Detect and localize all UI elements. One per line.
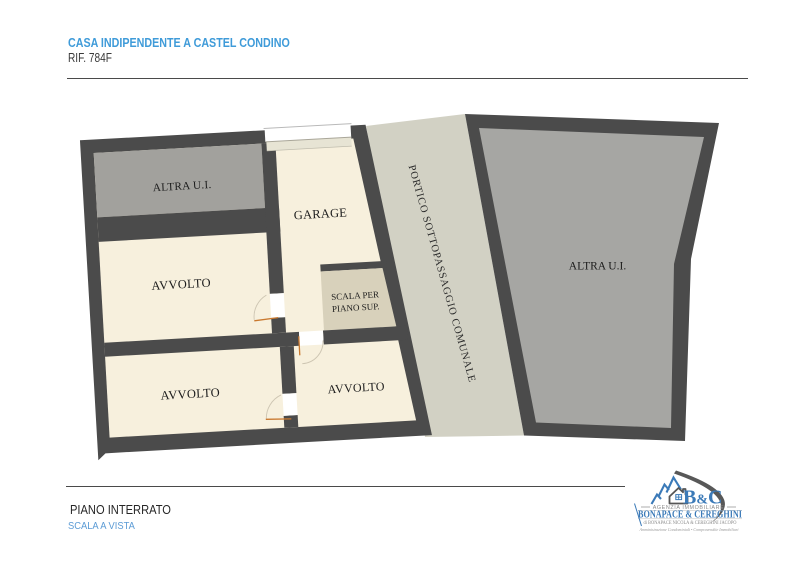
svg-text:di BONAPACE NICOLA & CEREGHINI: di BONAPACE NICOLA & CEREGHINI JACOPO <box>644 520 737 526</box>
svg-text:ALTRA U.I.: ALTRA U.I. <box>569 261 627 273</box>
svg-text:GARAGE: GARAGE <box>293 205 347 222</box>
svg-text:BONAPACE & CEREGHINI: BONAPACE & CEREGHINI <box>638 510 742 521</box>
svg-text:Amministrazione Condominiali •: Amministrazione Condominiali • Compraven… <box>639 527 739 532</box>
